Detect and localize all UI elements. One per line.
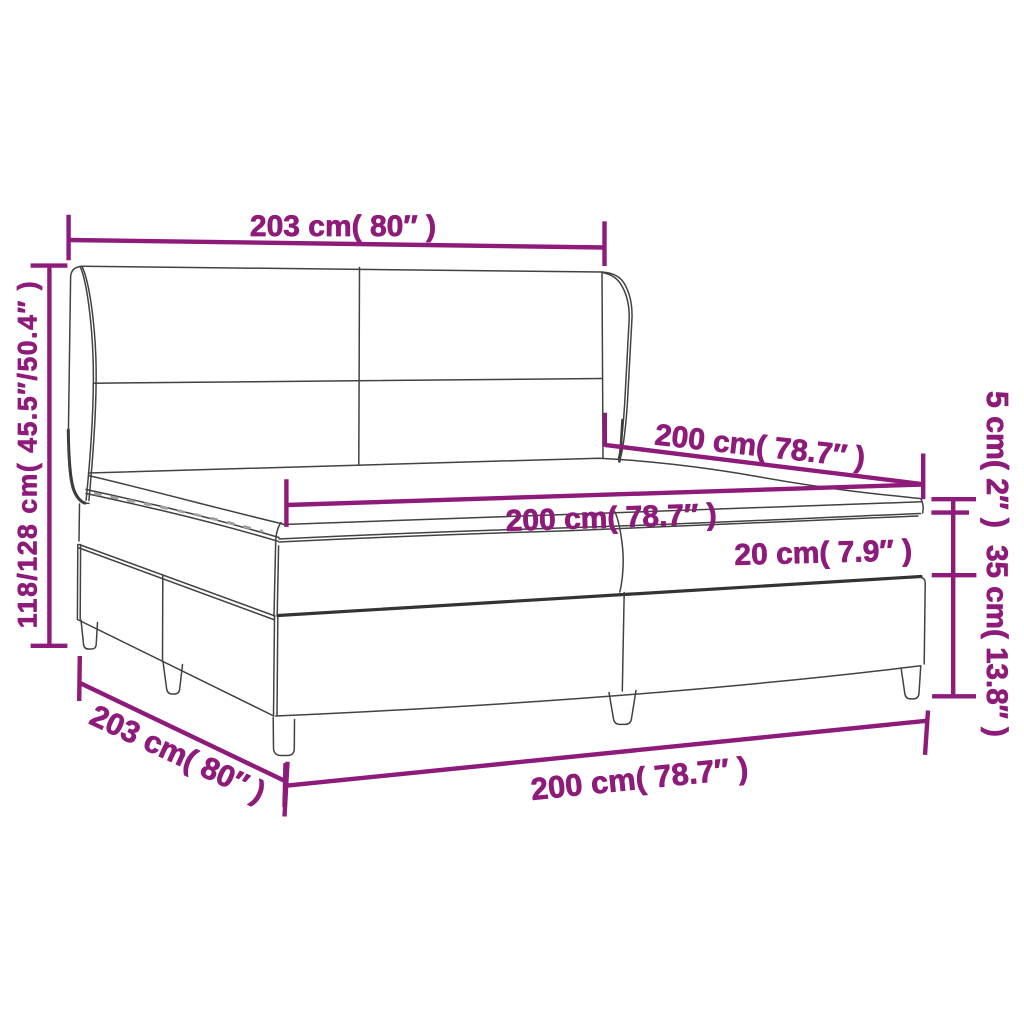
svg-text:200 cm( 78.7″ ): 200 cm( 78.7″ ) [505,498,717,538]
svg-text:203 cm( 80″ ): 203 cm( 80″ ) [250,210,436,243]
svg-text:20 cm( 7.9″ ): 20 cm( 7.9″ ) [734,534,913,572]
svg-text:118/128 cm( 45.5″/50.4″ ): 118/128 cm( 45.5″/50.4″ ) [13,280,43,628]
svg-text:35 cm( 13.8″ ): 35 cm( 13.8″ ) [980,545,1013,737]
svg-text:5 cm( 2″ ): 5 cm( 2″ ) [980,391,1013,528]
